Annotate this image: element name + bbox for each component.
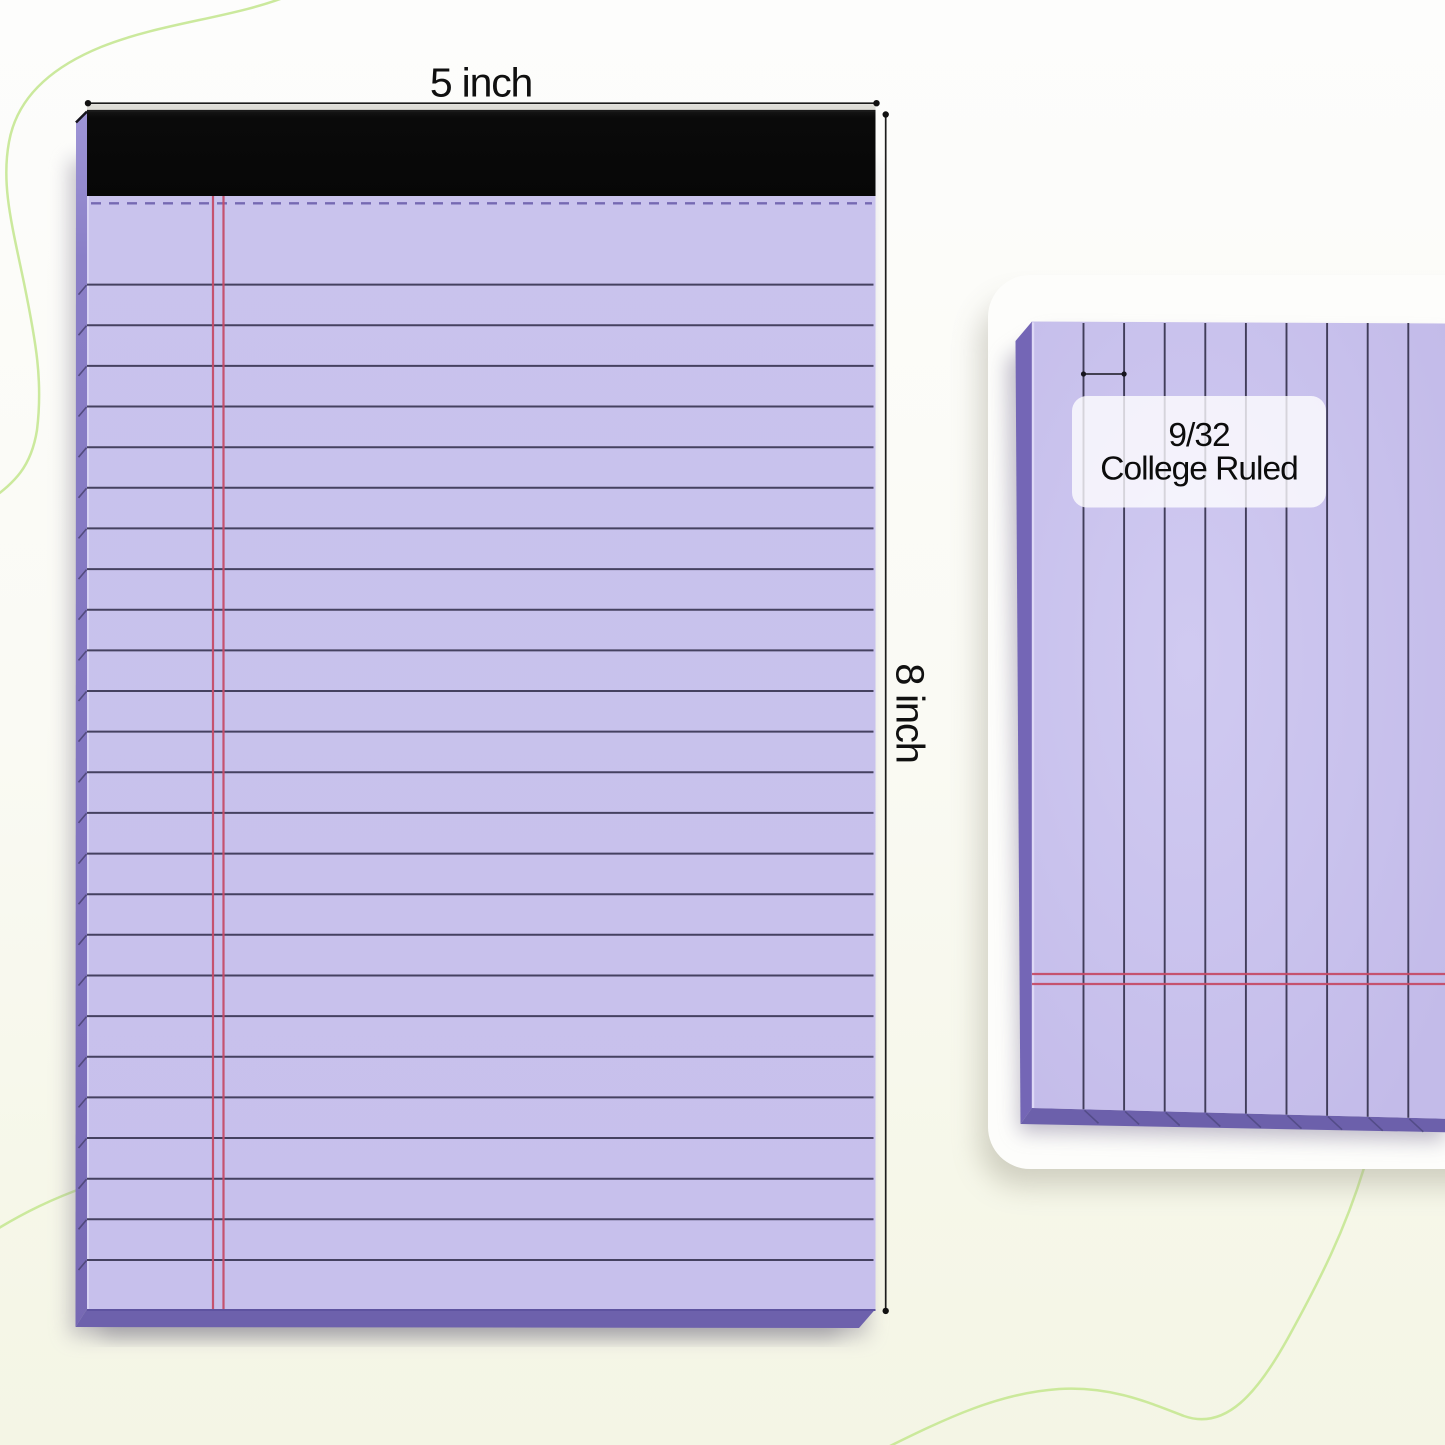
svg-text:8 inch: 8 inch xyxy=(888,663,932,763)
svg-text:9/32: 9/32 xyxy=(1168,417,1229,454)
svg-text:5 inch: 5 inch xyxy=(430,60,532,106)
svg-text:College Ruled: College Ruled xyxy=(1100,451,1297,488)
